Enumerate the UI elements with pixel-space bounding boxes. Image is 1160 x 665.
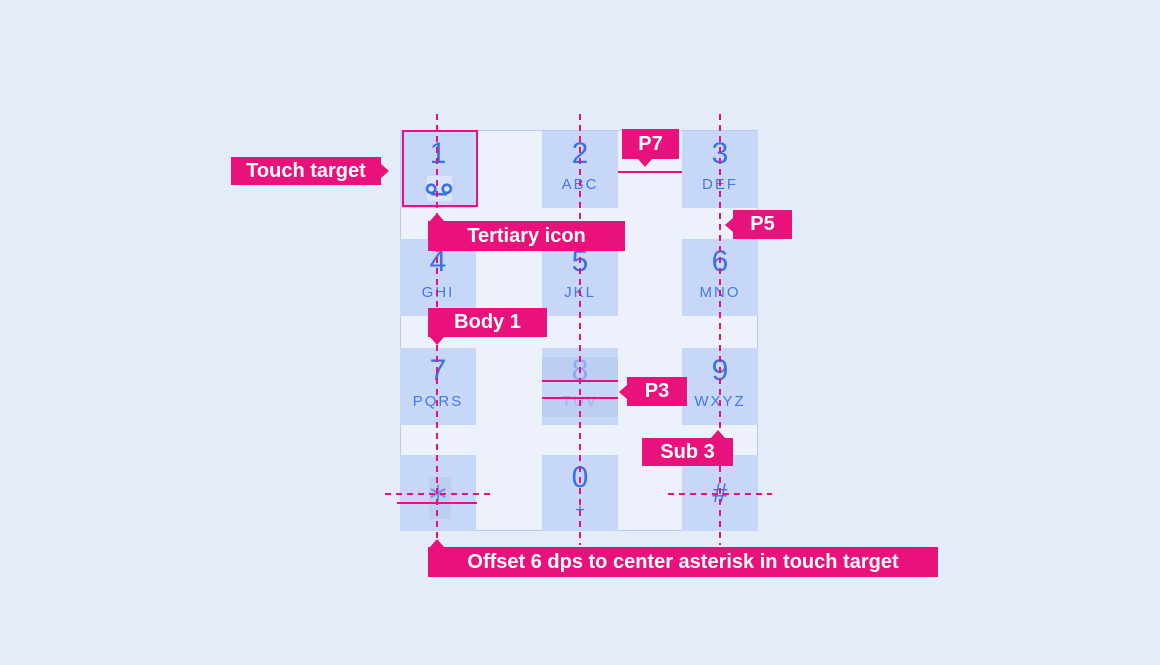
p3-label: P3	[627, 377, 687, 406]
arrow-right-icon	[381, 164, 389, 178]
body1-label: Body 1	[428, 308, 547, 337]
label-text: P3	[645, 380, 669, 402]
arrow-up-icon	[430, 213, 444, 221]
arrow-left-icon	[725, 218, 733, 232]
arrow-left-icon	[619, 385, 627, 399]
label-text: Offset 6 dps to center asterisk in touch…	[467, 551, 898, 573]
asterisk-center-guide	[385, 493, 492, 495]
column3-center-guide	[719, 114, 721, 545]
label-text: Body 1	[454, 311, 521, 333]
key-number: 7	[430, 354, 447, 388]
arrow-down-icon	[638, 159, 652, 167]
p3-measure-line-top	[542, 380, 618, 382]
label-text: P5	[750, 213, 774, 235]
p7-label: P7	[622, 129, 679, 159]
arrow-down-icon	[430, 337, 444, 345]
touch-target-label: Touch target	[231, 157, 381, 185]
label-text: P7	[638, 133, 662, 155]
touch-target-outline	[402, 130, 478, 207]
sub3-label: Sub 3	[642, 438, 733, 466]
arrow-up-icon	[711, 430, 725, 438]
key-7[interactable]: 7 PQRS	[400, 348, 476, 425]
p5-label: P5	[733, 210, 792, 239]
hash-center-guide	[668, 493, 772, 495]
p7-measure-line	[618, 171, 682, 173]
label-text: Tertiary icon	[467, 225, 586, 247]
column2-center-guide	[579, 114, 581, 545]
arrow-up-icon	[430, 539, 444, 547]
label-text: Sub 3	[660, 441, 714, 463]
label-text: Touch target	[246, 160, 366, 182]
tertiary-icon-label: Tertiary icon	[428, 221, 625, 251]
p3-measure-line-bottom	[542, 397, 618, 399]
offset-measure-line	[397, 502, 477, 504]
dialpad-spec-figure: 1 2 ABC 3 DEF 4 GHI 5 JKL 6 MNO 7 PQRS 8…	[0, 0, 1160, 665]
offset-note-label: Offset 6 dps to center asterisk in touch…	[428, 547, 938, 577]
